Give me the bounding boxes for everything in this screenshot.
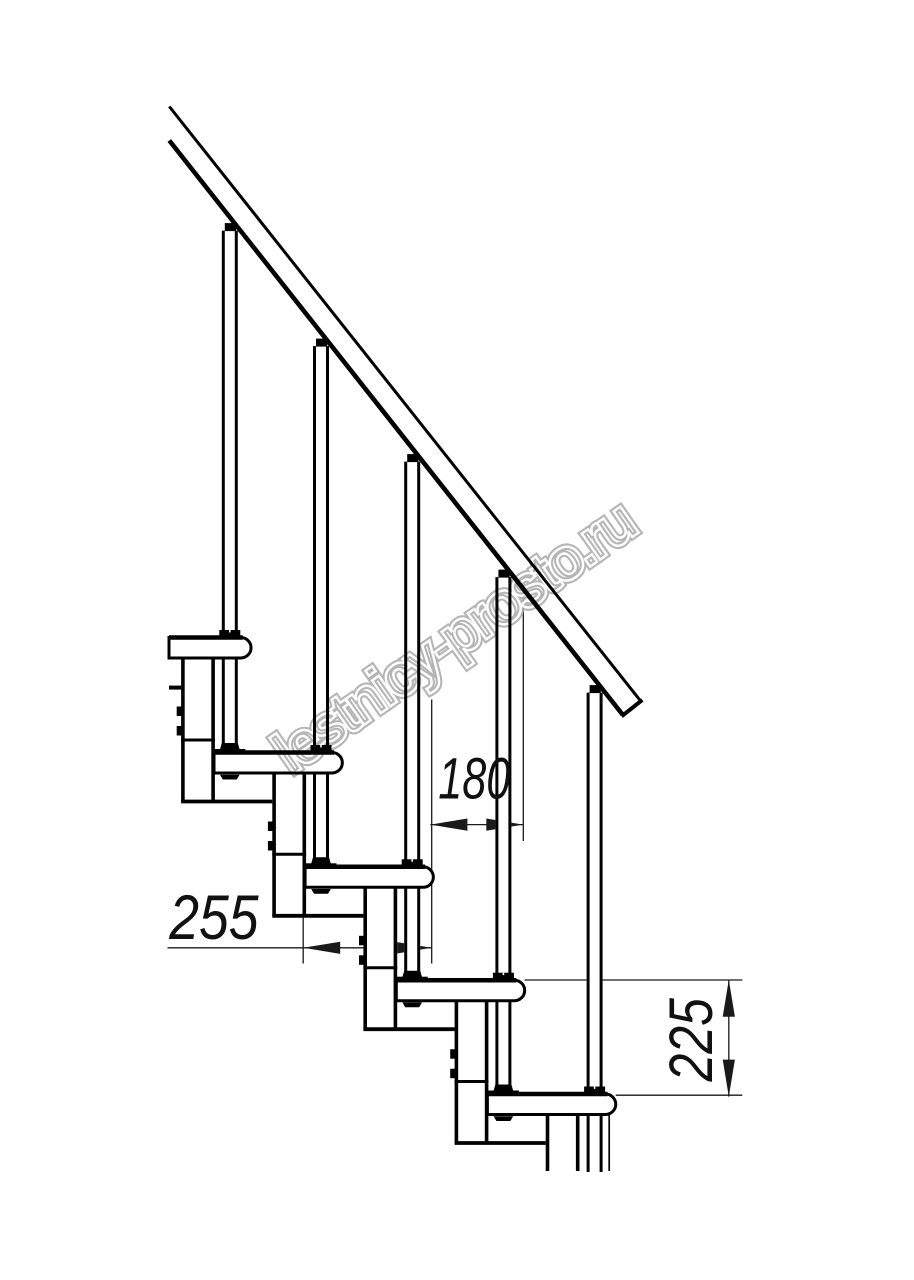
svg-text:180: 180 — [438, 746, 511, 811]
svg-text:225: 225 — [657, 997, 725, 1082]
svg-text:255: 255 — [168, 883, 259, 953]
